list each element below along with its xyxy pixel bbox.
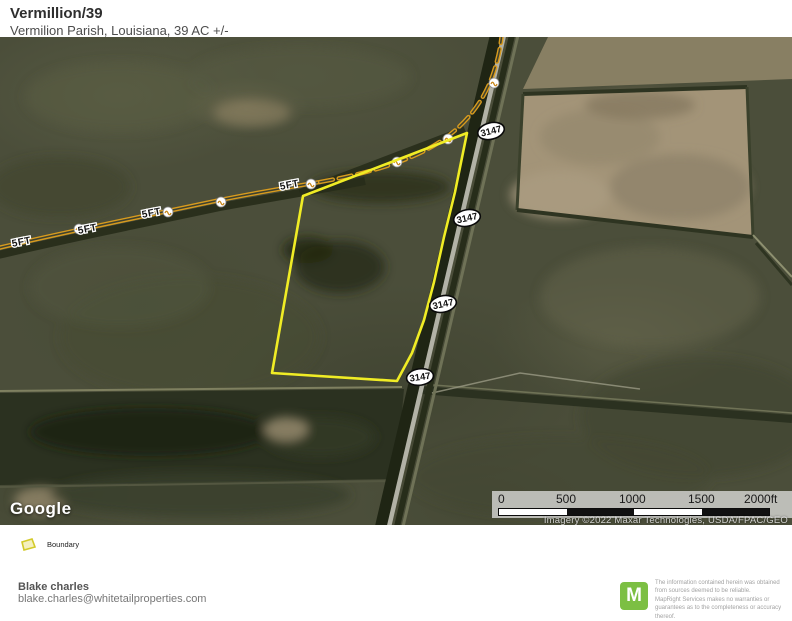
agent-email: blake.charles@whitetailproperties.com	[18, 593, 206, 605]
disclaimer-line: The information contained herein was obt…	[655, 579, 791, 596]
scale-tick: 2000ft	[744, 492, 777, 506]
satellite-map: 5FT 5FT 5FT 5FT 3147 3147 3147 3147	[0, 37, 792, 525]
scale-tick: 0	[498, 492, 505, 506]
agent-name: Blake charles	[18, 581, 206, 593]
legend: Boundary	[20, 538, 79, 551]
scale-tick: 500	[556, 492, 576, 506]
scale-box: 0 500 1000 1500 2000ft	[492, 491, 792, 518]
map-overlay: 5FT 5FT 5FT 5FT 3147 3147 3147 3147	[0, 37, 792, 525]
map-header: Vermillion/39 Vermilion Parish, Louisian…	[10, 5, 229, 39]
mapright-logo: M	[620, 582, 648, 610]
google-logo: Google	[10, 499, 72, 519]
disclaimer-text: The information contained herein was obt…	[655, 579, 791, 621]
disclaimer-line: MapRight Services makes no warranties or…	[655, 596, 791, 621]
boundary-legend-icon	[20, 538, 37, 551]
imagery-attribution: Imagery ©2022 Maxar Technologies, USDA/F…	[544, 515, 788, 525]
legend-item-label: Boundary	[47, 540, 79, 549]
scale-tick: 1500	[688, 492, 715, 506]
agent-info: Blake charles blake.charles@whitetailpro…	[18, 581, 206, 605]
page-title: Vermillion/39	[10, 5, 229, 23]
scale-tick: 1000	[619, 492, 646, 506]
